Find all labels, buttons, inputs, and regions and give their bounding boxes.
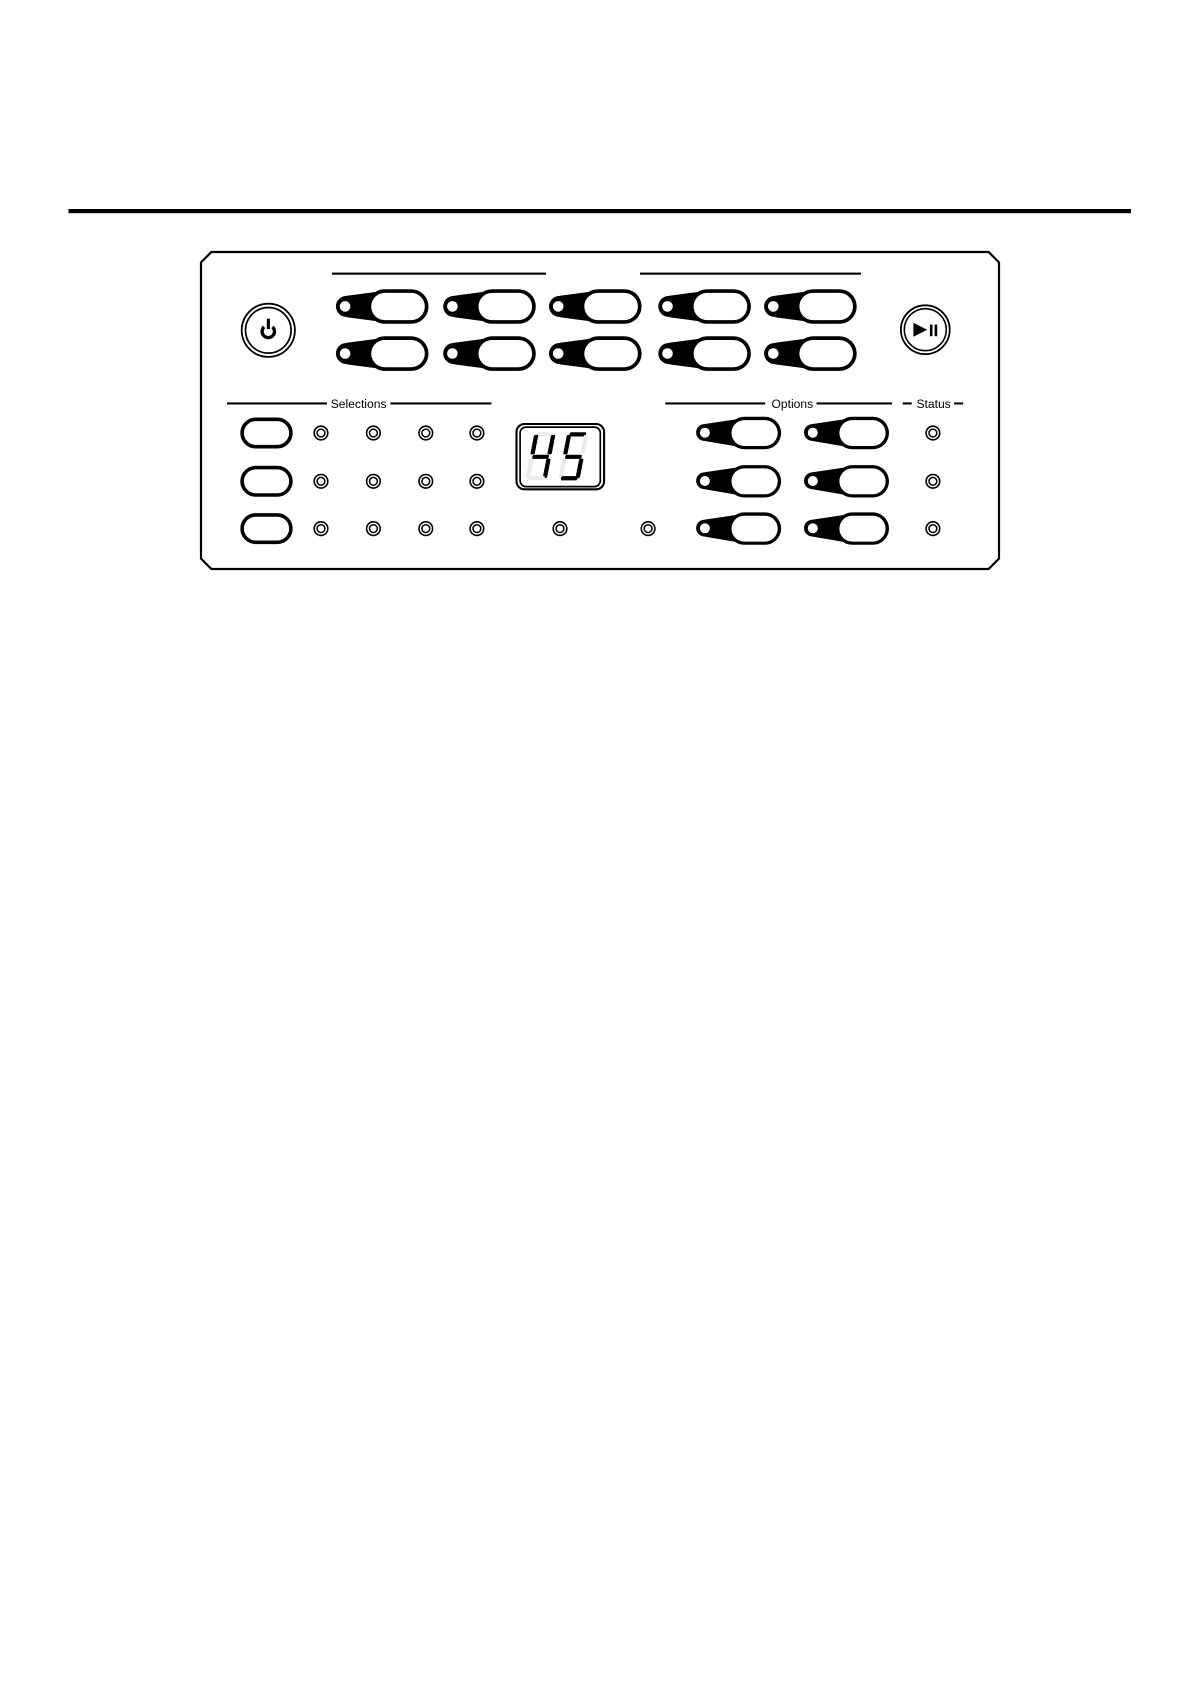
svg-text:Status: Status	[916, 397, 950, 411]
svg-text:Selections: Selections	[331, 397, 387, 411]
svg-text:Options: Options	[771, 397, 813, 411]
